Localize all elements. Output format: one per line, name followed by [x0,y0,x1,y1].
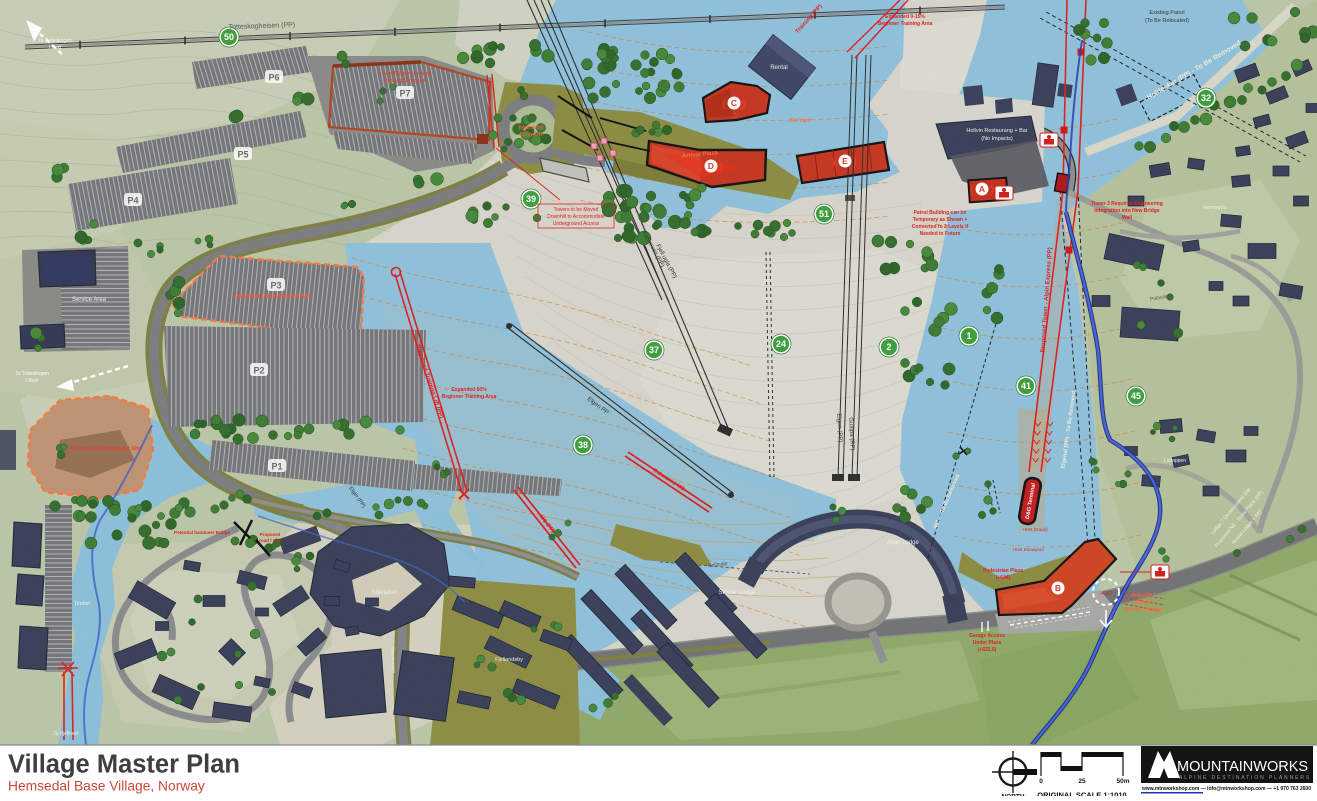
svg-text:ORIGINAL SCALE 1:1010: ORIGINAL SCALE 1:1010 [1037,791,1126,797]
svg-text:25: 25 [1078,778,1086,785]
svg-text:www.mtnworkshop.com — info@m: www.mtnworkshop.com — info@mtnworkshop.c… [1141,786,1311,792]
svg-text:Village Master Plan: Village Master Plan [8,751,240,779]
svg-text:0: 0 [1039,778,1043,785]
svg-text:ALPINE DESTINATION PLANNERS: ALPINE DESTINATION PLANNERS [1179,775,1311,781]
svg-text:MOUNTAINWORKS: MOUNTAINWORKS [1177,759,1308,775]
svg-text:Hemsedal Base Village, Norway: Hemsedal Base Village, Norway [8,779,205,794]
svg-text:50m: 50m [1116,778,1129,785]
